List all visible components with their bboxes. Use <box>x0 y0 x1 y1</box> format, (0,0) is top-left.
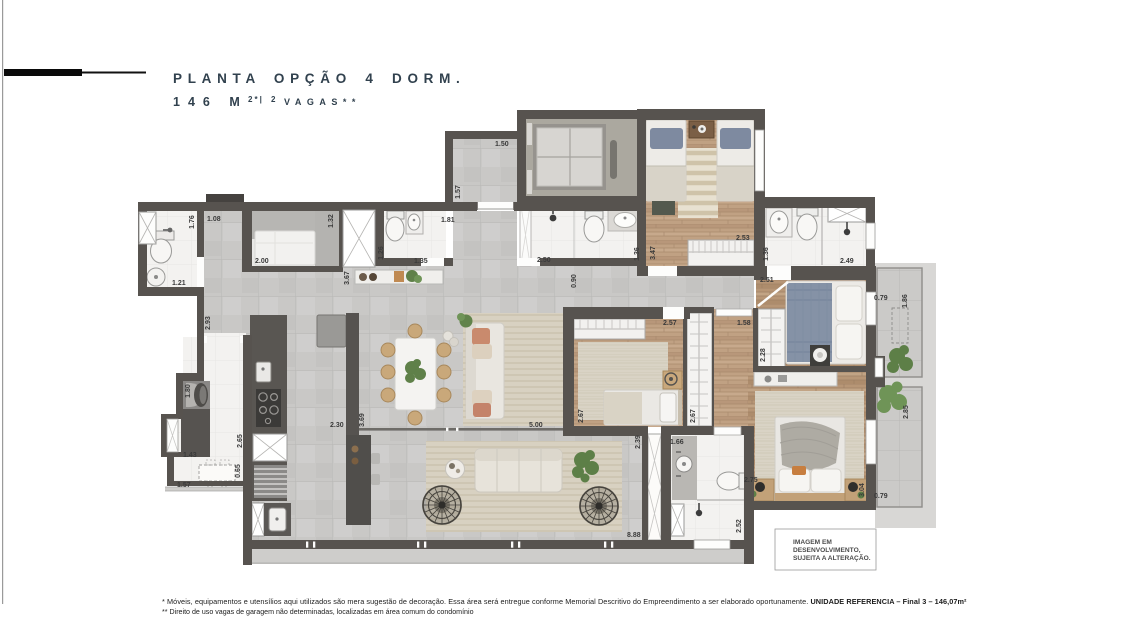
svg-text:1.76: 1.76 <box>189 215 196 229</box>
svg-text:2.30: 2.30 <box>330 422 344 429</box>
svg-text:1.35: 1.35 <box>414 258 428 265</box>
svg-text:0.90: 0.90 <box>571 274 578 288</box>
svg-text:** Direito de uso vagas de gar: ** Direito de uso vagas de garagem não d… <box>162 608 474 616</box>
svg-text:3.67: 3.67 <box>344 271 351 285</box>
svg-text:2.53: 2.53 <box>736 235 750 242</box>
svg-text:1.32: 1.32 <box>328 214 335 228</box>
svg-text:2.52: 2.52 <box>736 519 743 533</box>
svg-text:1.81: 1.81 <box>441 217 455 224</box>
svg-text:2.49: 2.49 <box>840 258 854 265</box>
svg-text:8.88: 8.88 <box>627 532 641 539</box>
svg-text:0.65: 0.65 <box>235 464 242 478</box>
svg-text:2.28: 2.28 <box>760 348 767 362</box>
svg-text:1.43: 1.43 <box>183 452 197 459</box>
svg-text:1.36: 1.36 <box>763 247 770 261</box>
svg-text:3.69: 3.69 <box>359 413 366 427</box>
svg-text:3.47: 3.47 <box>650 246 657 260</box>
svg-text:2*|: 2*| <box>248 95 264 104</box>
svg-text:3.04: 3.04 <box>859 483 866 497</box>
svg-text:2.67: 2.67 <box>578 409 585 423</box>
svg-text:2.75: 2.75 <box>744 477 758 484</box>
svg-text:* Móveis, equipamentos e utens: * Móveis, equipamentos e utensílios aqui… <box>162 597 967 606</box>
svg-text:1.26: 1.26 <box>378 246 385 260</box>
svg-text:2.00: 2.00 <box>255 258 269 265</box>
svg-text:2.51: 2.51 <box>760 277 774 284</box>
svg-text:2.57: 2.57 <box>663 320 677 327</box>
svg-text:2.85: 2.85 <box>903 405 910 419</box>
svg-text:1.66: 1.66 <box>670 439 684 446</box>
svg-text:1.36: 1.36 <box>634 247 641 261</box>
svg-text:1.86: 1.86 <box>902 294 909 308</box>
svg-text:0.79: 0.79 <box>874 295 888 302</box>
svg-text:1.50: 1.50 <box>495 141 509 148</box>
svg-text:1.58: 1.58 <box>737 320 751 327</box>
svg-text:DESENVOLVIMENTO,: DESENVOLVIMENTO, <box>793 547 861 554</box>
svg-text:IMAGEM EM: IMAGEM EM <box>793 539 832 546</box>
svg-text:VAGAS**: VAGAS** <box>284 97 361 107</box>
svg-text:2.39: 2.39 <box>635 435 642 449</box>
svg-text:2.67: 2.67 <box>690 409 697 423</box>
svg-text:5.00: 5.00 <box>529 422 543 429</box>
svg-text:1.80: 1.80 <box>185 384 192 398</box>
svg-text:SUJEITA A ALTERAÇÃO.: SUJEITA A ALTERAÇÃO. <box>793 553 871 562</box>
svg-text:1.21: 1.21 <box>172 280 186 287</box>
svg-text:146 M: 146 M <box>173 95 248 109</box>
svg-text:2.93: 2.93 <box>205 316 212 330</box>
svg-text:0.79: 0.79 <box>874 493 888 500</box>
svg-text:PLANTA OPÇÃO 4 DORM.: PLANTA OPÇÃO 4 DORM. <box>173 71 466 86</box>
svg-text:2.65: 2.65 <box>237 434 244 448</box>
svg-text:1.57: 1.57 <box>455 185 462 199</box>
svg-text:2.50: 2.50 <box>537 257 551 264</box>
svg-text:2: 2 <box>271 95 276 104</box>
svg-text:1.57: 1.57 <box>177 482 191 489</box>
svg-text:1.08: 1.08 <box>207 216 221 223</box>
